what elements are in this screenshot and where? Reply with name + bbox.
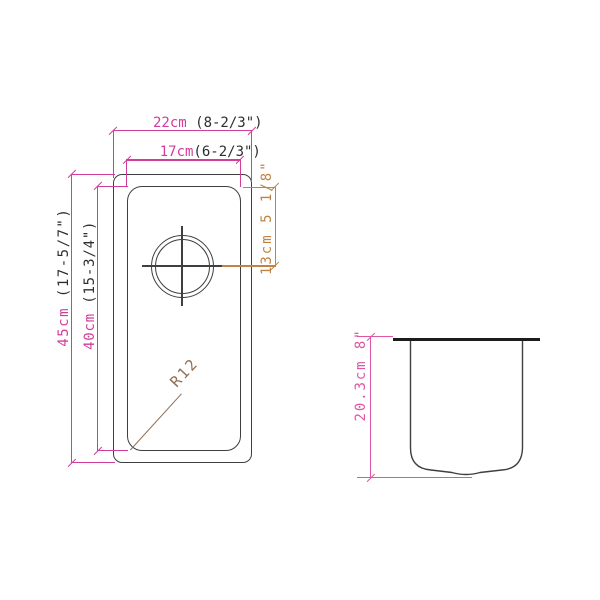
- dim-depth-metric: 20.3cm: [353, 360, 369, 422]
- side-basin-profile: [0, 0, 600, 600]
- dim-depth-label: 20.3cm 8": [340, 329, 382, 484]
- dim-depth-imperial: 8": [353, 329, 369, 360]
- technical-drawing-canvas: 22cm (8-2/3") 17cm(6-2/3") 45cm (17-5/7"…: [0, 0, 600, 600]
